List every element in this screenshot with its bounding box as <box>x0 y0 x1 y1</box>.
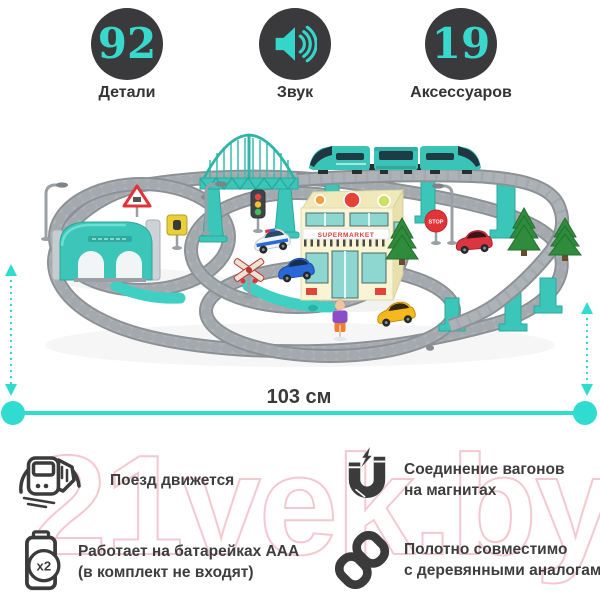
accessories-count: 19 <box>432 23 490 65</box>
dimension-height-arrow-left <box>5 264 17 396</box>
stat-badge-accessories: 19 <box>425 8 497 80</box>
stat-badge-parts: 92 <box>91 8 163 80</box>
toy-train <box>309 146 481 174</box>
stat-label-parts: Детали <box>47 84 207 102</box>
battery-count-label: x2 <box>37 558 52 573</box>
info-sign <box>167 215 187 250</box>
feature-text-compat: Полотно совместимо с деревянными аналога… <box>404 539 600 581</box>
magnet-icon <box>344 447 390 501</box>
width-dimension-label: 103 см <box>267 386 332 408</box>
chain-icon <box>334 531 392 589</box>
product-card: { "colors": { "accent_teal": "#35d6ca", … <box>0 0 600 592</box>
product-photo: SUPERMARKET <box>0 120 600 430</box>
tunnel <box>52 220 160 282</box>
dimension-height-arrow-right <box>581 302 593 396</box>
stop-sign: STOP <box>425 210 447 245</box>
features-section: Поезд движется Соединение вагонов на маг… <box>0 430 600 592</box>
parts-count: 92 <box>98 23 156 65</box>
stat-label-accessories: Аксессуаров <box>381 84 541 102</box>
stop-sign-label: STOP <box>429 220 444 226</box>
train-icon <box>12 434 88 510</box>
battery-icon: x2 <box>20 530 62 592</box>
building-sign: SUPERMARKET <box>318 232 375 239</box>
stat-label-sound: Звук <box>215 84 375 102</box>
speaker-icon <box>273 24 317 64</box>
suspension-bridge <box>199 135 299 242</box>
feature-text-magnet: Соединение вагонов на магнитах <box>404 459 564 501</box>
dimension-width-line: 103 см <box>1 386 597 425</box>
stat-badge-sound <box>259 8 331 80</box>
traffic-light <box>251 190 265 233</box>
feature-text-battery: Работает на батарейках AAA (в комплект н… <box>78 541 299 583</box>
supermarket-building: SUPERMARKET <box>301 190 403 300</box>
feature-text-train: Поезд движется <box>110 470 234 491</box>
red-car <box>455 229 493 254</box>
train-wagon <box>374 147 418 170</box>
